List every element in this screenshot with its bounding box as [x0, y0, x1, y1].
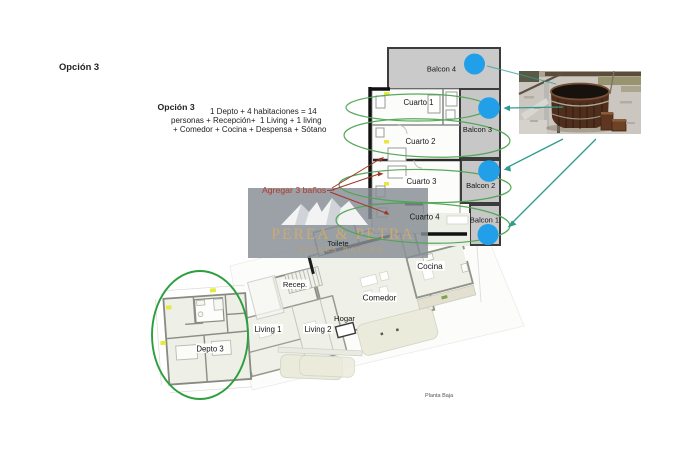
svg-text:Balcon 2: Balcon 2 [466, 181, 495, 190]
svg-text:Balcon 4: Balcon 4 [427, 64, 456, 73]
svg-text:Living 1: Living 1 [255, 325, 282, 334]
svg-text:Balcon 3: Balcon 3 [463, 125, 492, 134]
svg-text:Comedor: Comedor [363, 294, 397, 303]
svg-text:Cuarto 3: Cuarto 3 [407, 177, 437, 186]
svg-text:Recep.: Recep. [283, 280, 307, 289]
svg-text:Hogar: Hogar [334, 314, 355, 323]
svg-text:Toilete: Toilete [327, 239, 348, 248]
svg-text:Cuarto 1: Cuarto 1 [404, 98, 434, 107]
svg-text:Cocina: Cocina [417, 262, 443, 271]
svg-text:Cuarto 2: Cuarto 2 [406, 137, 436, 146]
svg-text:Balcon 1: Balcon 1 [470, 216, 499, 225]
svg-text:Depto 3: Depto 3 [196, 345, 223, 354]
svg-text:Cuarto 4: Cuarto 4 [410, 213, 441, 222]
svg-text:Living 2: Living 2 [305, 325, 332, 334]
